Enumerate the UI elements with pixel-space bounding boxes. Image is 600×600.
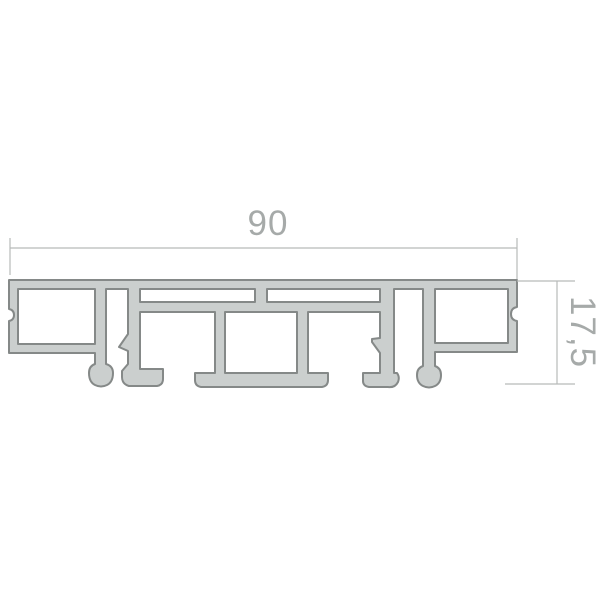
width-dimension-label: 90	[248, 204, 289, 243]
profile-cross-section	[9, 280, 517, 388]
height-dimension-label: 17,5	[563, 296, 600, 368]
technical-drawing-canvas: 90 17,5	[0, 0, 600, 600]
profile-drawing: 90 17,5	[0, 0, 600, 600]
